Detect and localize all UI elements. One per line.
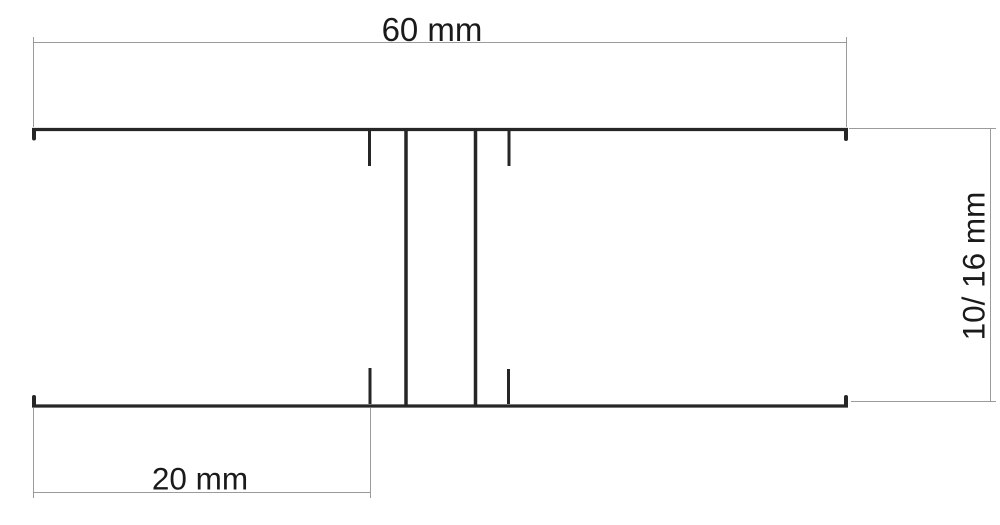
svg-text:20 mm: 20 mm [152,461,248,497]
svg-text:10/ 16 mm: 10/ 16 mm [956,192,992,341]
